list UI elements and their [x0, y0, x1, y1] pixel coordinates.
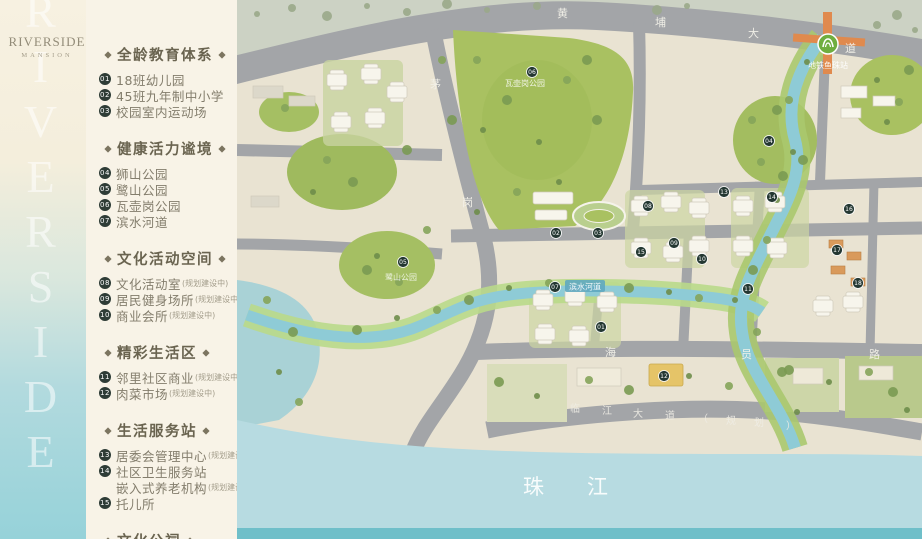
watermark-text: RIVERSIDE MANSION [14, 0, 67, 539]
site-plan-map: 地铁鱼珠站 黄 埔 大 道 茅 岗 海 员 路 临 江 大 道 （ 规 划 ） … [237, 0, 922, 539]
svg-text:07: 07 [551, 284, 559, 291]
svg-text:埔: 埔 [655, 16, 666, 29]
legend-item: 12肉菜市场(规划建设中) [99, 385, 237, 401]
svg-text:（: （ [698, 413, 708, 425]
marker-badge: 07 [99, 215, 111, 227]
map-marker: 15 [636, 247, 647, 258]
diamond-icon [104, 145, 111, 152]
item-label: 商业会所 [116, 306, 168, 325]
marker-badge: 01 [99, 73, 111, 85]
marker-badge: 03 [99, 105, 111, 117]
logo-line1: RIVERSIDE [6, 34, 88, 50]
map-marker: 01 [596, 322, 607, 333]
map-marker: 03 [593, 228, 604, 239]
legend-section-shrines: 文化公祠 16曾氏公祠 17李氏公祠 18梁氏公祠 [99, 530, 237, 539]
logo-line2: MANSION [6, 52, 88, 59]
marker-badge: 02 [99, 89, 111, 101]
diamond-icon [104, 427, 111, 434]
svg-text:13: 13 [720, 189, 728, 196]
diamond-icon [104, 255, 111, 262]
svg-text:大: 大 [748, 26, 759, 40]
marker-badge: 06 [99, 199, 111, 211]
svg-text:01: 01 [597, 324, 605, 331]
section-title: 文化活动空间 [99, 248, 237, 269]
diamond-icon [218, 255, 225, 262]
canal-label: 滨水河道 [569, 282, 601, 292]
legend-section-culture: 文化活动空间 08文化活动室(规划建设中) 09居民健身场所(规划建设中) 10… [99, 248, 237, 323]
svg-text:道: 道 [845, 41, 856, 55]
section-title: 生活服务站 [99, 420, 237, 441]
map-marker: 08 [643, 201, 654, 212]
svg-text:12: 12 [660, 373, 668, 380]
map-marker: 18 [853, 278, 864, 289]
map-marker: 09 [669, 238, 680, 249]
site-plan-svg: 地铁鱼珠站 黄 埔 大 道 茅 岗 海 员 路 临 江 大 道 （ 规 划 ） … [237, 0, 922, 539]
map-marker: 13 [719, 187, 730, 198]
svg-text:18: 18 [854, 280, 862, 287]
diamond-icon [104, 349, 111, 356]
svg-text:17: 17 [833, 247, 841, 254]
svg-text:16: 16 [845, 206, 853, 213]
stadium-track [573, 202, 625, 230]
legend-item: 10商业会所(规划建设中) [99, 307, 237, 323]
item-label: 滨水河道 [116, 212, 168, 231]
svg-text:规: 规 [726, 414, 736, 427]
svg-text:临: 临 [570, 402, 580, 415]
legend-section-services: 生活服务站 13居委会管理中心(规划建设中) 14社区卫生服务站 嵌入式养老机构… [99, 420, 237, 511]
svg-text:划: 划 [754, 416, 764, 429]
svg-text:08: 08 [644, 203, 652, 210]
map-marker: 05 [398, 257, 409, 268]
park-wahugang-label: 瓦壶岗公园 [505, 78, 545, 88]
svg-text:道: 道 [665, 409, 675, 422]
section-title: 文化公祠 [99, 530, 237, 539]
marker-badge: 15 [99, 497, 111, 509]
metro-logo-icon [818, 34, 838, 54]
marker-badge: 05 [99, 183, 111, 195]
item-label: 校园室内运动场 [116, 102, 207, 121]
park-lushan-label: 鹭山公园 [385, 272, 417, 282]
marker-badge: 08 [99, 277, 111, 289]
map-marker: 07 [550, 282, 561, 293]
svg-text:岗: 岗 [462, 196, 473, 209]
svg-text:04: 04 [765, 138, 773, 145]
item-label: 托儿所 [116, 494, 155, 513]
svg-text:14: 14 [768, 194, 776, 201]
office-building [841, 86, 867, 98]
map-marker: 17 [832, 245, 843, 256]
svg-text:03: 03 [594, 230, 602, 237]
marker-badge: 09 [99, 293, 111, 305]
svg-text:11: 11 [744, 286, 752, 293]
section-title-text: 健康活力谧境 [117, 138, 213, 159]
svg-text:05: 05 [399, 259, 407, 266]
section-title-text: 精彩生活区 [117, 342, 197, 363]
diamond-icon [202, 427, 209, 434]
item-note: (规划建设中) [169, 310, 215, 321]
legend-section-education: 全龄教育体系 0118班幼儿园 0245班九年制中小学 03校园室内运动场 [99, 44, 237, 119]
svg-text:06: 06 [528, 69, 536, 76]
legend-item: 03校园室内运动场 [99, 103, 237, 119]
svg-text:江: 江 [602, 405, 612, 417]
svg-text:路: 路 [869, 348, 880, 361]
road-haiyuan-road [477, 349, 922, 352]
diamond-icon [202, 349, 209, 356]
item-note: (规划建设中) [169, 388, 215, 399]
legend-section-living: 精彩生活区 11邻里社区商业(规划建设中) 12肉菜市场(规划建设中) [99, 342, 237, 401]
svg-text:黄: 黄 [557, 6, 568, 20]
brand-logo: RIVERSIDE MANSION [6, 34, 88, 59]
section-title: 健康活力谧境 [99, 138, 237, 159]
legend-item: 15托儿所 [99, 495, 237, 511]
marker-badge: 10 [99, 309, 111, 321]
map-marker: 11 [743, 284, 754, 295]
legend-item: 07滨水河道 [99, 213, 237, 229]
marker-badge: 14 [99, 465, 111, 477]
map-marker: 04 [764, 136, 775, 147]
metro-station-label: 地铁鱼珠站 [808, 60, 848, 70]
legend-section-parks: 健康活力谧境 04狮山公园 05鹭山公园 06瓦壶岗公园 07滨水河道 [99, 138, 237, 229]
diamond-icon [104, 51, 111, 58]
pearl-river-label: 江 [587, 475, 610, 499]
svg-text:15: 15 [637, 249, 645, 256]
marker-badge: 11 [99, 371, 111, 383]
pearl-river-label: 珠 [523, 475, 546, 499]
marker-badge: 04 [99, 167, 111, 179]
svg-text:茅: 茅 [430, 78, 441, 91]
marker-badge: 12 [99, 387, 111, 399]
marker-badge: 13 [99, 449, 111, 461]
svg-text:海: 海 [605, 345, 616, 359]
svg-text:09: 09 [670, 240, 678, 247]
section-title-text: 文化公祠 [117, 530, 181, 539]
map-marker: 02 [551, 228, 562, 239]
watermark-strip: RIVERSIDE MANSION [0, 0, 86, 539]
svg-text:02: 02 [552, 230, 560, 237]
map-marker: 06 [527, 67, 538, 78]
svg-text:大: 大 [633, 407, 643, 420]
svg-text:员: 员 [741, 348, 752, 361]
section-title: 全龄教育体系 [99, 44, 237, 65]
svg-text:10: 10 [698, 256, 706, 263]
map-marker: 16 [844, 204, 855, 215]
park-lushan [339, 231, 435, 299]
map-legend: 全龄教育体系 0118班幼儿园 0245班九年制中小学 03校园室内运动场 健康… [99, 44, 237, 539]
section-title-text: 全龄教育体系 [117, 44, 213, 65]
item-note: (规划建设中) [195, 294, 241, 305]
section-title-text: 文化活动空间 [117, 248, 213, 269]
section-title-text: 生活服务站 [117, 420, 197, 441]
item-note: (规划建设中) [182, 278, 228, 289]
map-marker: 14 [767, 192, 778, 203]
item-note: (规划建设中) [195, 372, 241, 383]
school-building [533, 192, 573, 204]
item-label: 肉菜市场 [116, 384, 168, 403]
svg-text:）: ） [786, 420, 796, 432]
masterplan-page: RIVERSIDE MANSION RIVERSIDE MANSION 全龄教育… [0, 0, 922, 539]
map-marker: 10 [697, 254, 708, 265]
diamond-icon [218, 145, 225, 152]
map-marker: 12 [659, 371, 670, 382]
pearl-river-edge [237, 528, 922, 539]
section-title: 精彩生活区 [99, 342, 237, 363]
diamond-icon [218, 51, 225, 58]
